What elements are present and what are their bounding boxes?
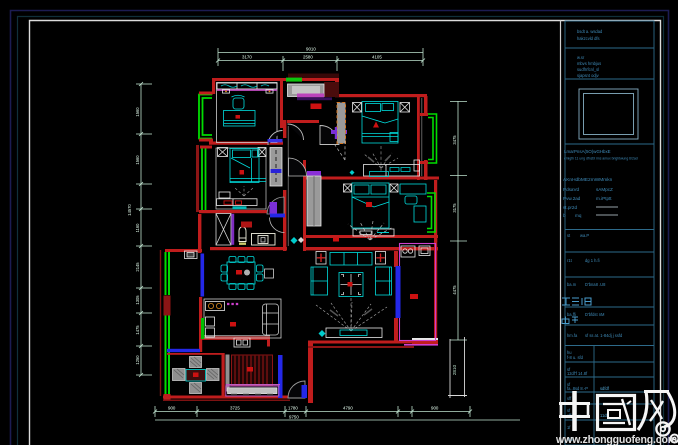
svg-text:sf ss at. 1-84dj j ssfd: sf ss at. 1-84dj j ssfd — [585, 333, 623, 338]
svg-text:AKnHdbME2mWMmkn: AKnHdbME2mWMmkn — [563, 177, 613, 183]
svg-text:wa.P: wa.P — [580, 233, 589, 238]
svg-text:1560: 1560 — [135, 155, 140, 165]
svg-text:LmarPnsA(5O)wGHbxE: LmarPnsA(5O)wGHbxE — [564, 149, 611, 154]
svg-text:900: 900 — [431, 406, 439, 411]
svg-text:3170: 3170 — [242, 55, 252, 60]
svg-text:m.iPtptt: m.iPtptt — [596, 196, 612, 201]
svg-text:w.sr: w.sr — [577, 55, 585, 60]
svg-text:hakzcvld dfs: hakzcvld dfs — [577, 36, 600, 41]
svg-text:f-8 u. sfd: f-8 u. sfd — [567, 355, 584, 360]
svg-text:Pvw.2ad: Pvw.2ad — [563, 196, 581, 201]
svg-text:dg 1 h.fi: dg 1 h.fi — [585, 258, 600, 263]
svg-text:st.pr2d: st.pr2d — [563, 205, 577, 210]
svg-text:mbvs hmbjus: mbvs hmbjus — [577, 61, 601, 66]
svg-text:4790: 4790 — [343, 406, 353, 411]
svg-text:D'bfdst nM: D'bfdst nM — [585, 312, 605, 317]
svg-text:sjapsnt odjv: sjapsnt odjv — [577, 73, 600, 78]
svg-text:D'bna8 .U8: D'bna8 .U8 — [585, 282, 606, 287]
svg-text:hm.fa: hm.fa — [567, 333, 578, 338]
svg-text:ba.m: ba.m — [567, 282, 577, 287]
svg-text:9750: 9750 — [289, 415, 299, 420]
svg-text:ba.ffi: ba.ffi — [567, 312, 576, 317]
svg-text:3175: 3175 — [452, 203, 457, 213]
svg-text:4475: 4475 — [452, 285, 457, 295]
svg-text:9010: 9010 — [306, 47, 316, 52]
svg-text:sAMpcZ: sAMpcZ — [596, 187, 613, 192]
svg-text:1780: 1780 — [288, 406, 298, 411]
svg-text:3475: 3475 — [452, 135, 457, 145]
svg-text:2810: 2810 — [452, 364, 457, 375]
svg-text:sdfdf: sdfdf — [600, 386, 610, 391]
svg-text:900: 900 — [168, 406, 176, 411]
svg-text:cmigth 11 ung dfnzbt ims amux: cmigth 11 ung dfnzbt ims amux brightwung… — [564, 157, 638, 161]
svg-text:1305: 1305 — [135, 295, 140, 305]
svg-text:14570: 14570 — [127, 204, 132, 216]
svg-text:12df'f 14.8f: 12df'f 14.8f — [567, 371, 588, 376]
svg-text:mq: mq — [575, 213, 582, 218]
svg-text:PdsaVd: PdsaVd — [563, 187, 580, 192]
svg-text:sudfrrfcnl_sl: sudfrrfcnl_sl — [577, 67, 599, 72]
svg-text:3725: 3725 — [230, 406, 240, 411]
svg-text:2580: 2580 — [303, 55, 313, 60]
svg-text:1250: 1250 — [135, 355, 140, 365]
svg-text:fa..8sd 8.-P: fa..8sd 8.-P — [567, 386, 588, 391]
svg-text:www.zhongguofeng.com: www.zhongguofeng.com — [555, 434, 677, 445]
svg-text:1560: 1560 — [135, 107, 140, 117]
svg-text:2145: 2145 — [135, 262, 140, 272]
svg-text:4105: 4105 — [372, 55, 382, 60]
svg-text:1160: 1160 — [135, 223, 140, 233]
svg-text:b: b — [563, 213, 566, 218]
svg-text:1475: 1475 — [135, 325, 140, 335]
svg-text:bsdt a. wsdad: bsdt a. wsdad — [577, 29, 603, 34]
